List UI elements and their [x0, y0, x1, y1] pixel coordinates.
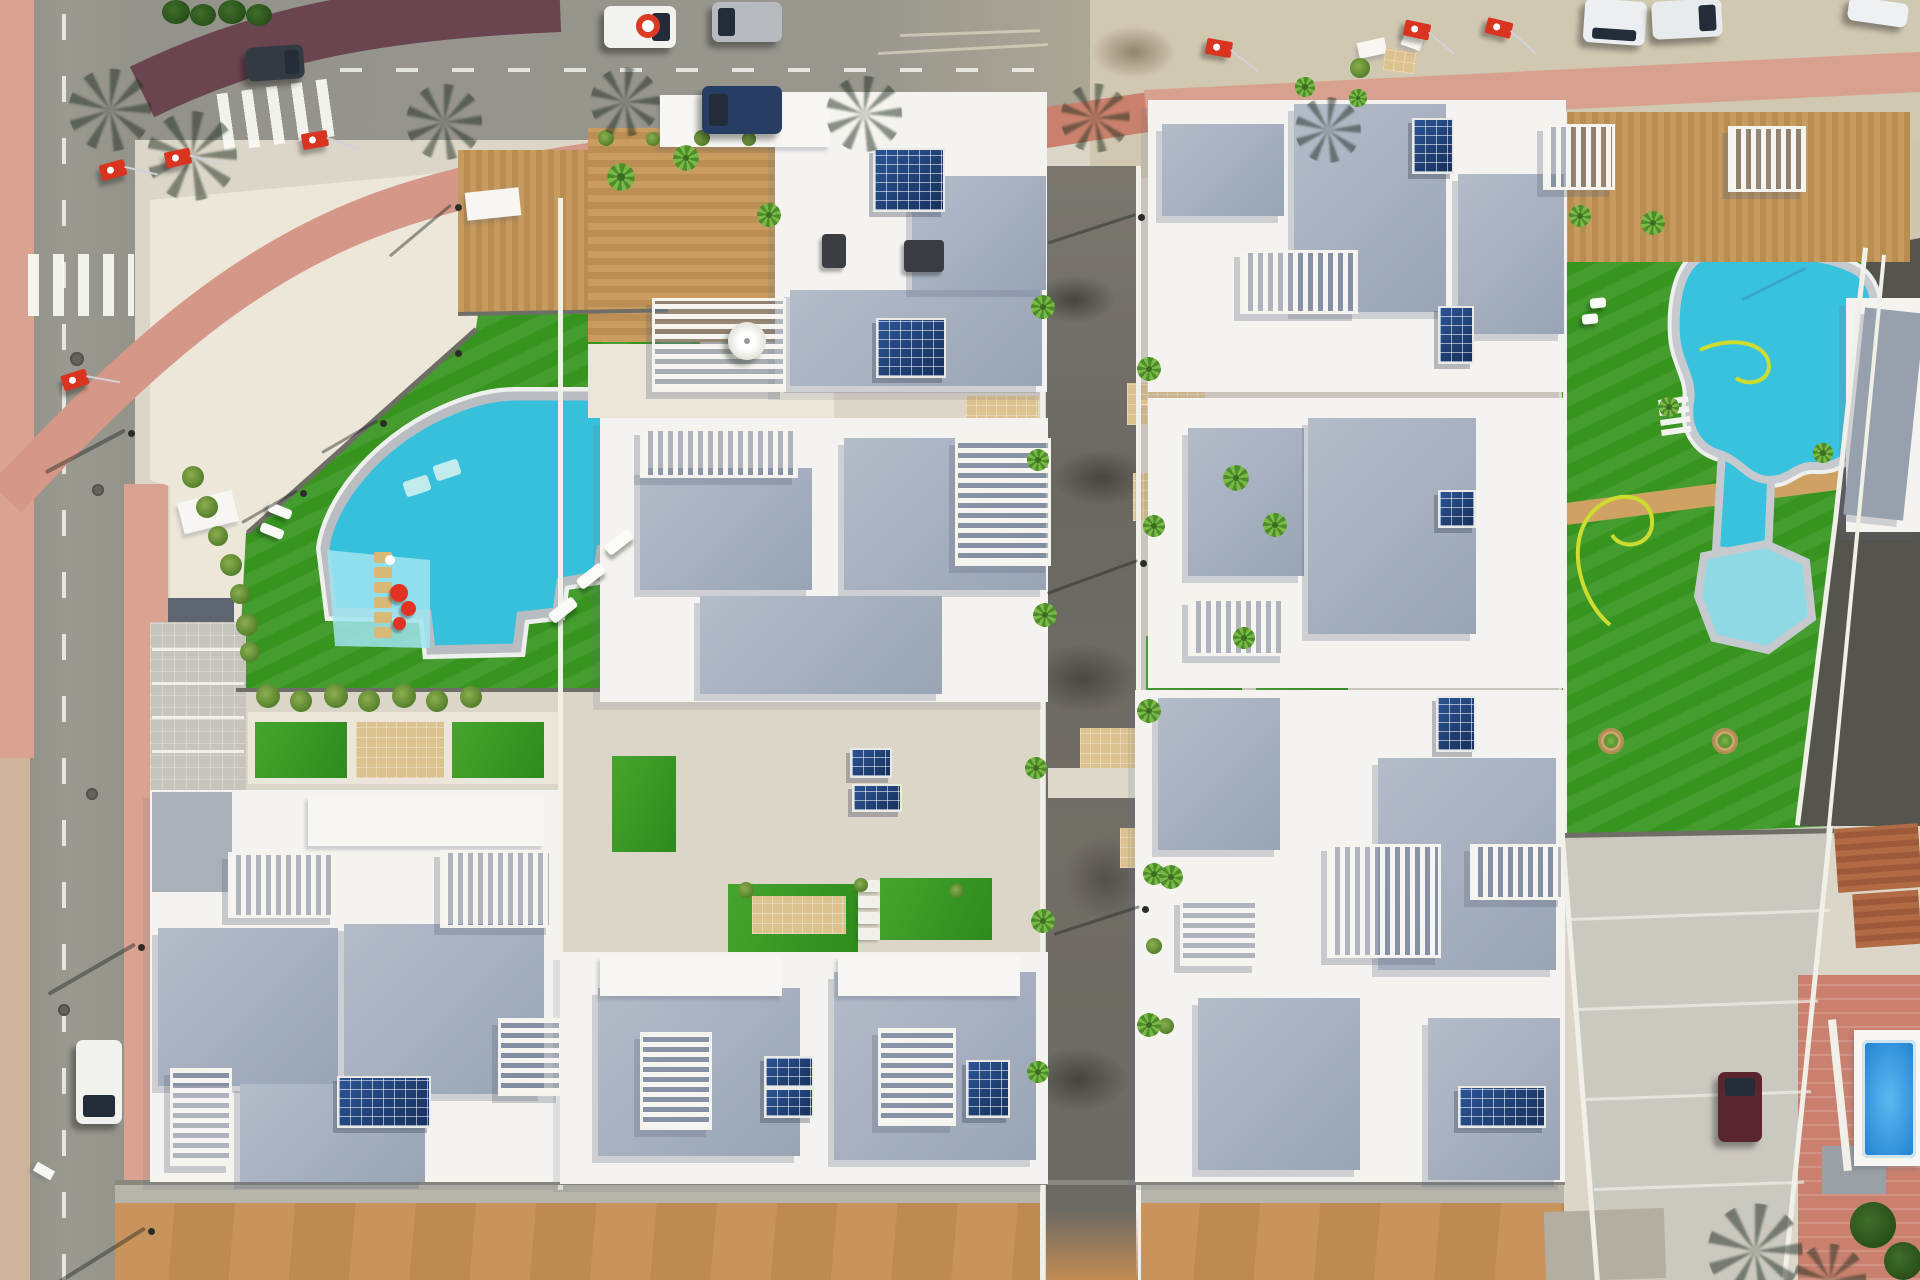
round-planter-1	[1598, 728, 1624, 754]
palm-road-w6	[1026, 1060, 1050, 1084]
palm-shadow-3	[400, 78, 488, 166]
palm-east-deck-2	[1640, 210, 1666, 236]
palm-road-w4	[1024, 756, 1048, 780]
palm-road-e5	[1136, 1012, 1162, 1038]
lamp-3	[148, 1228, 155, 1235]
red-roof-decal	[636, 14, 660, 38]
junk-2	[1383, 48, 1418, 74]
roof-sw1	[158, 928, 338, 1086]
pergola-se-3	[1180, 898, 1258, 966]
lamp-9	[380, 420, 387, 427]
stepping-stone-4	[858, 928, 880, 940]
round-planter-2	[1712, 728, 1738, 754]
promo-flag-5	[1205, 38, 1233, 58]
hedge-8	[256, 684, 280, 708]
palm-road-w5	[1030, 908, 1056, 934]
lamp-shadow-2	[47, 943, 136, 996]
lamp-5	[1138, 214, 1145, 221]
palm-road-e1	[1136, 356, 1162, 382]
pergola-ne	[1240, 250, 1358, 314]
roof-se3	[1198, 998, 1360, 1170]
pergola-c-1	[640, 1032, 712, 1130]
neighbor-palm-1	[1850, 1202, 1896, 1248]
colonnade-sw	[308, 796, 544, 846]
windshield	[1725, 1078, 1756, 1096]
manhole-4	[58, 1004, 70, 1016]
blue-suv-top	[702, 86, 782, 134]
sand-stain	[1092, 26, 1176, 78]
hedge-11	[358, 690, 380, 712]
colonnade-c2	[838, 956, 1020, 996]
roof-b1	[640, 468, 812, 590]
lamp-shadow-4	[389, 204, 452, 258]
center-lawn-1	[612, 756, 676, 852]
solar-array-12	[1436, 696, 1476, 752]
palm-road-w1	[1030, 294, 1056, 320]
br-road-joint-3	[1586, 1090, 1811, 1101]
palm-deck-1	[606, 162, 636, 192]
promo-flag-7	[1484, 17, 1513, 39]
br-road-joint-2	[1578, 1000, 1818, 1011]
manhole-2	[92, 484, 104, 496]
hedge-14	[460, 686, 482, 708]
palm-shadow-6	[1055, 78, 1135, 158]
palm-road-e2	[1142, 514, 1166, 538]
lamp-1	[128, 430, 135, 437]
rooftop-unit-1	[822, 234, 846, 268]
median-bush-3	[218, 0, 246, 24]
hedge-9	[290, 690, 312, 712]
tire-track-1	[900, 29, 1040, 37]
pool-step-pad-5	[374, 612, 392, 623]
sun-lounger-7	[1582, 313, 1599, 325]
pergola-sw-3	[170, 1068, 232, 1166]
hedge-3	[208, 526, 228, 546]
lamp-shadow-1	[45, 428, 126, 474]
solar-array-10	[1438, 306, 1474, 364]
median-bush-2	[190, 4, 216, 26]
br-road-joint-1	[1570, 909, 1830, 921]
white-parasol	[728, 322, 766, 360]
windshield	[1592, 28, 1636, 42]
palm-plaza-1	[1222, 464, 1250, 492]
sun-lounger-6	[1590, 297, 1607, 309]
promo-flag-1	[98, 159, 127, 181]
promo-flag-3	[301, 130, 329, 150]
silver-car-top	[712, 2, 782, 42]
manhole-1	[70, 352, 84, 366]
red-flower-pot-2	[401, 601, 416, 616]
starfish-ornament	[385, 555, 395, 565]
promo-flag-4	[60, 368, 90, 391]
garden-bush-1	[738, 882, 754, 898]
palm-road-e3	[1136, 698, 1162, 724]
palm-east-deck-1	[1568, 204, 1592, 228]
pergola-east-deck-1	[1543, 124, 1615, 190]
windshield	[284, 50, 299, 74]
lamp-shadow-9	[321, 419, 378, 454]
float-mat-2	[432, 458, 462, 481]
junk-1	[1357, 37, 1388, 58]
garden-patio-1	[356, 722, 444, 778]
red-flower-pot-3	[393, 617, 406, 630]
southwest-court	[152, 792, 232, 892]
manhole-3	[86, 788, 98, 800]
white-van-3	[1847, 0, 1910, 28]
hedge-13	[426, 690, 448, 712]
hedge-7	[240, 642, 260, 662]
median-bush-4	[246, 4, 272, 26]
palm-pool-planter-2	[1812, 442, 1834, 464]
pergola-b-top	[640, 428, 798, 478]
hedge-5	[230, 584, 250, 604]
solar-array-5	[764, 1056, 814, 1088]
palm-road-w3	[1032, 602, 1058, 628]
neighbor-pool	[1862, 1040, 1916, 1158]
lamp-8	[300, 490, 307, 497]
stepping-stone-2	[858, 896, 880, 908]
object-layer	[0, 0, 1920, 1280]
lamp-2	[138, 944, 145, 951]
aerial-photo-villa-complex	[0, 0, 1920, 1280]
central-road-crossing	[1048, 768, 1138, 798]
garden-lawn-1	[255, 722, 347, 778]
crosswalk-left-street	[28, 254, 134, 316]
palm-road-w2	[1026, 448, 1050, 472]
lamp-shadow-6	[1047, 559, 1138, 595]
pool-step-pad-4	[374, 597, 392, 608]
dark-suv-top-left	[245, 44, 305, 82]
white-van-1	[1583, 0, 1648, 46]
pergola-sw-1	[228, 852, 336, 918]
solar-array-6	[764, 1088, 814, 1118]
palm-deck-3	[756, 202, 782, 228]
center-patio-1	[752, 896, 846, 934]
colonnade-c1	[600, 956, 782, 996]
roof-se1	[1158, 698, 1280, 850]
solar-array-1	[873, 148, 945, 212]
median-bush-1	[162, 0, 190, 24]
palm-pool-planter-1	[1658, 396, 1680, 418]
pergola-se-2	[1470, 844, 1564, 900]
pergola-c-2	[878, 1028, 956, 1126]
east-lawn-south-wall	[1562, 828, 1834, 838]
corner-bush	[1350, 58, 1370, 78]
terracotta-roof-1	[1834, 823, 1920, 893]
windshield	[83, 1095, 115, 1117]
parking-line-2	[152, 682, 244, 685]
pergola-se-big	[1327, 844, 1441, 958]
road-debris	[33, 1162, 55, 1181]
pool-step-pad-6	[374, 627, 392, 638]
pool-step-pad-2	[374, 567, 392, 578]
windshield	[709, 94, 728, 127]
garden-bush-3	[950, 884, 964, 898]
garden-bush-4	[1146, 938, 1162, 954]
garden-lawn-2	[452, 722, 544, 778]
south-sidewalk-west	[115, 1183, 1040, 1203]
pergola-a-annex	[652, 298, 786, 392]
maroon-hatchback	[1718, 1072, 1762, 1142]
tire-track-2	[878, 43, 1048, 55]
rooftop-unit-2	[904, 240, 944, 272]
solar-array-7	[966, 1060, 1010, 1118]
solar-array-11	[1438, 490, 1476, 528]
terracotta-roof-2	[1852, 890, 1920, 948]
solar-array-8	[337, 1076, 431, 1128]
neighbor-palm-2	[1884, 1242, 1920, 1280]
pergola-sw-2	[440, 850, 552, 928]
lamp-7	[1142, 906, 1149, 913]
hedge-10	[324, 684, 348, 708]
lamp-shadow-5	[1048, 213, 1136, 244]
palm-shadow-5	[820, 70, 908, 158]
solar-array-9	[1412, 118, 1454, 174]
road-dirt-fade	[1046, 1210, 1138, 1280]
parking-line-3	[152, 716, 244, 719]
solar-array-2	[876, 318, 946, 378]
deck-lounge-canopy	[465, 187, 522, 220]
lamp-10	[455, 350, 462, 357]
windshield	[1698, 5, 1716, 32]
red-flower-pot-1	[390, 584, 408, 602]
center-lawn-3	[880, 878, 992, 940]
hedge-1	[182, 466, 204, 488]
gravel-spill	[1544, 1208, 1666, 1280]
roof-ne3	[1162, 124, 1284, 216]
hedge-12	[392, 684, 416, 708]
lamp-6	[1140, 560, 1147, 567]
palm-plaza-2	[1262, 512, 1288, 538]
roof-b3	[700, 596, 942, 694]
solar-array-13	[1458, 1086, 1546, 1128]
roof-e1	[1188, 428, 1304, 576]
hedge-6	[236, 614, 258, 636]
pergola-sw-4	[498, 1018, 562, 1096]
windshield	[718, 8, 735, 35]
sun-lounger-5	[259, 522, 285, 540]
south-sidewalk-east	[1140, 1183, 1564, 1203]
deck-bush-4	[742, 132, 756, 146]
garden-bush-2	[854, 878, 868, 892]
parking-line-1	[152, 648, 244, 651]
palm-plaza-3	[1232, 626, 1256, 650]
solar-array-4	[852, 784, 902, 812]
br-road-joint-4	[1594, 1181, 1804, 1191]
lamp-shadow-3	[55, 1227, 146, 1280]
hedge-2	[196, 496, 218, 518]
solar-array-3	[850, 748, 892, 778]
palm-deck-2	[672, 144, 700, 172]
sun-lounger-3	[547, 596, 578, 624]
palm-shadow-4	[585, 62, 665, 142]
palm-plaza-4	[1158, 864, 1184, 890]
white-hatchback-left-street	[76, 1040, 122, 1124]
parking-line-4	[152, 750, 244, 753]
palm-shadow-7	[1290, 92, 1366, 168]
lamp-shadow-7	[1053, 905, 1140, 936]
stepping-stone-3	[858, 912, 880, 924]
lamp-4	[455, 204, 462, 211]
float-mat-1	[402, 474, 432, 497]
hedge-4	[220, 554, 242, 576]
white-van-2	[1651, 0, 1723, 40]
pergola-east-deck-2	[1728, 126, 1806, 192]
